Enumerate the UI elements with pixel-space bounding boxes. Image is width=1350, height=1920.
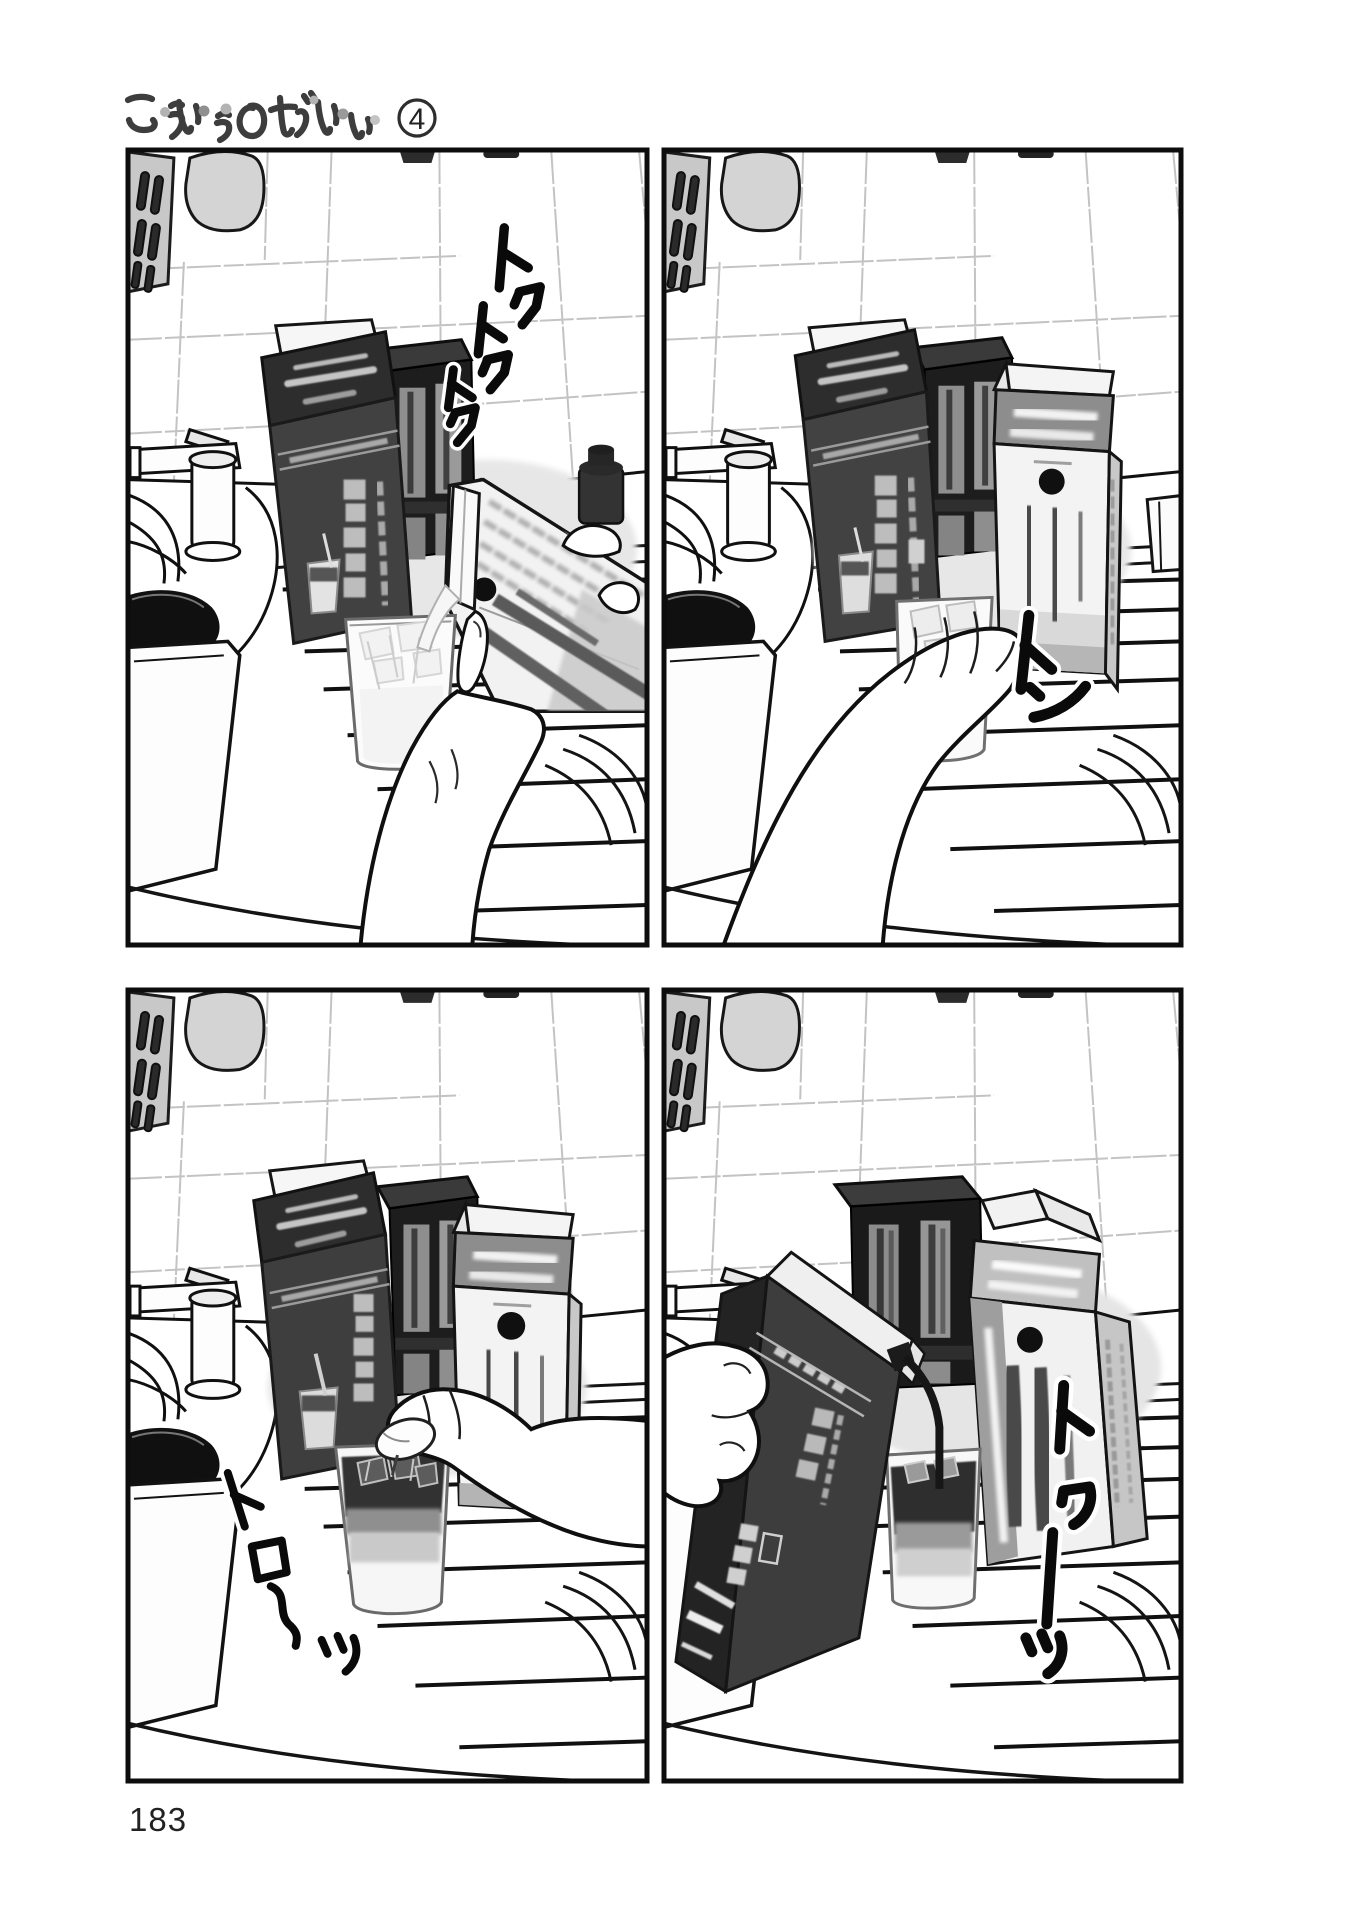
svg-text:4: 4 xyxy=(409,103,426,136)
svg-text:183: 183 xyxy=(129,1801,187,1838)
